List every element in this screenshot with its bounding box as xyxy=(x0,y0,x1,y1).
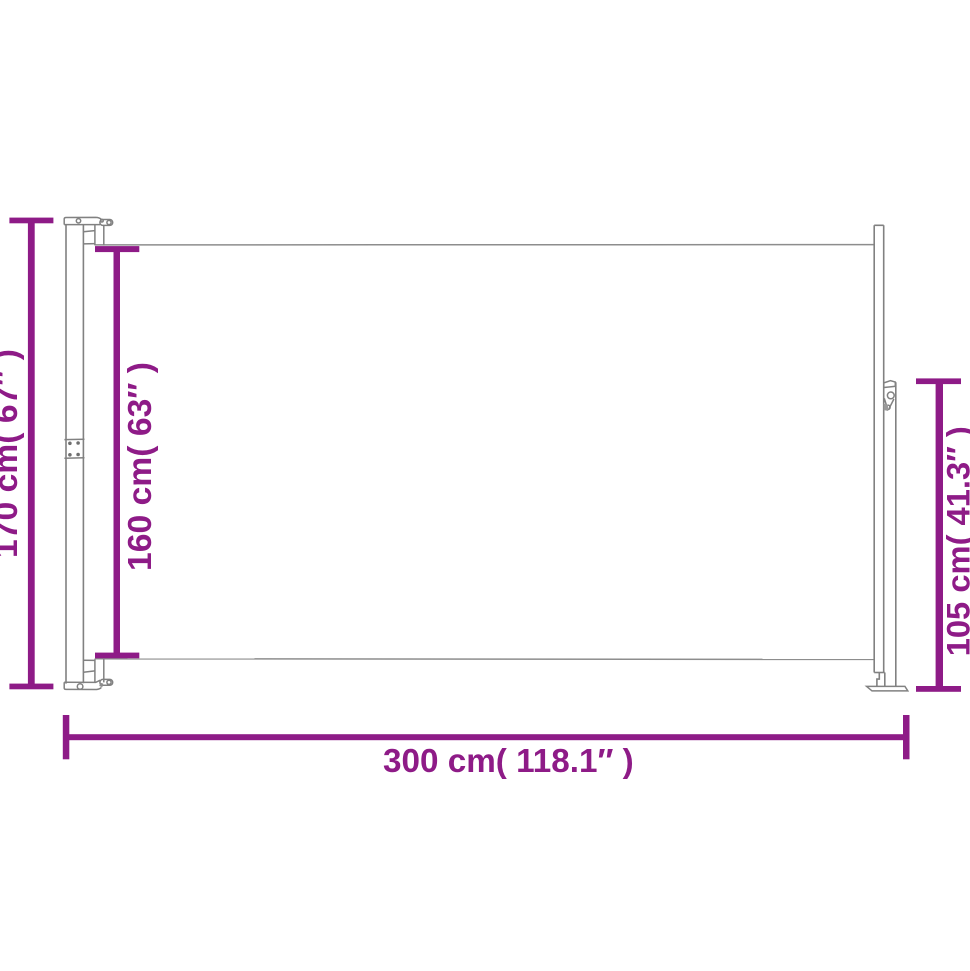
svg-text:170 cm( 67″ ): 170 cm( 67″ ) xyxy=(0,349,25,558)
svg-text:105 cm( 41.3″ ): 105 cm( 41.3″ ) xyxy=(940,426,970,656)
svg-text:300 cm( 118.1″ ): 300 cm( 118.1″ ) xyxy=(383,743,634,780)
svg-text:160 cm( 63″ ): 160 cm( 63″ ) xyxy=(121,362,159,571)
